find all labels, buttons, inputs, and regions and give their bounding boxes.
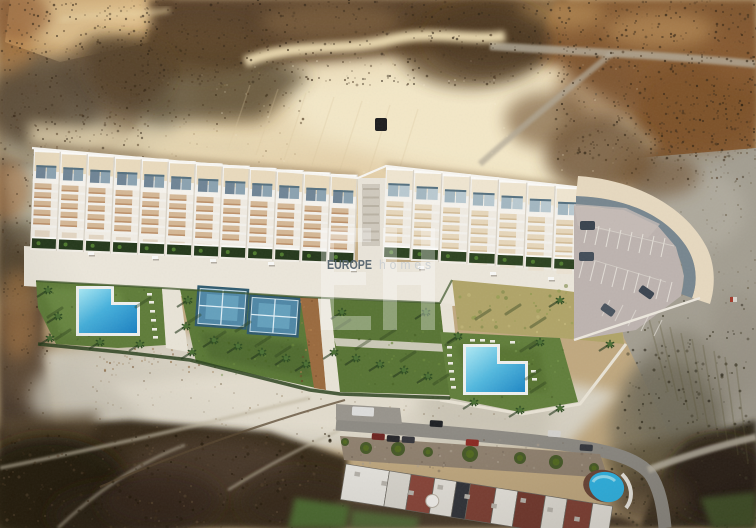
svg-text:homes: homes: [379, 258, 435, 272]
svg-text:EUROPE: EUROPE: [327, 258, 372, 272]
